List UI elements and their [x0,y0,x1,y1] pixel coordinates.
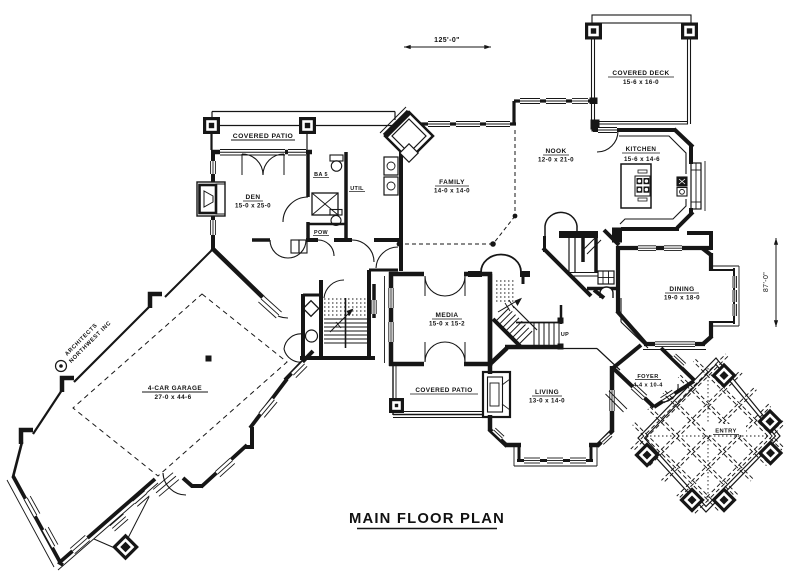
svg-text:LIVING: LIVING [535,389,559,396]
svg-text:15-6 x 14-6: 15-6 x 14-6 [624,156,660,163]
svg-text:14-0 x 14-0: 14-0 x 14-0 [434,188,470,195]
svg-text:27-0 x 44-6: 27-0 x 44-6 [154,394,191,401]
svg-text:12-0 x 21-0: 12-0 x 21-0 [538,157,574,164]
svg-text:POW: POW [314,230,329,236]
svg-text:BA 5: BA 5 [314,172,328,178]
svg-text:MEDIA: MEDIA [436,312,459,319]
svg-text:FOYER: FOYER [637,374,658,380]
svg-text:19-0 x 18-0: 19-0 x 18-0 [664,295,700,302]
svg-text:125'-0": 125'-0" [434,37,460,44]
svg-text:COVERED DECK: COVERED DECK [612,70,669,77]
svg-text:UTIL: UTIL [350,186,364,192]
svg-text:NOOK: NOOK [545,148,566,155]
svg-text:15-0 x 15-2: 15-0 x 15-2 [429,321,465,328]
svg-text:13-0 x 14-0: 13-0 x 14-0 [529,398,565,405]
svg-text:ENTRY: ENTRY [715,429,736,435]
svg-text:4-4 x 10-4: 4-4 x 10-4 [633,383,663,389]
svg-text:DEN: DEN [246,194,261,201]
svg-text:COVERED PATIO: COVERED PATIO [415,387,472,394]
svg-text:FAMILY: FAMILY [439,179,465,186]
svg-text:4-CAR GARAGE: 4-CAR GARAGE [148,385,202,392]
svg-text:87'-0": 87'-0" [763,272,770,292]
svg-text:15-0 x 25-0: 15-0 x 25-0 [235,203,271,210]
svg-text:KITCHEN: KITCHEN [626,146,657,153]
svg-text:DINING: DINING [669,286,694,293]
svg-text:COVERED PATIO: COVERED PATIO [233,133,293,140]
svg-text:UP: UP [561,332,569,338]
svg-text:15-6 x 16-0: 15-6 x 16-0 [623,79,659,86]
svg-text:MAIN FLOOR PLAN: MAIN FLOOR PLAN [349,511,505,527]
